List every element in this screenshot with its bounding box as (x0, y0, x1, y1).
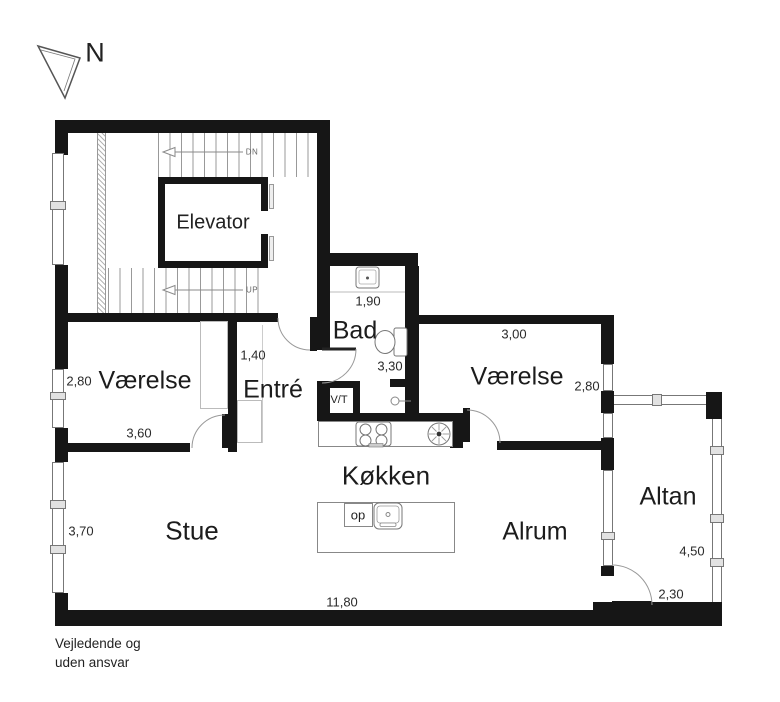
bathroom-sink (330, 267, 405, 292)
window-mullion (50, 392, 66, 400)
wall-elevator-right-lower (261, 234, 268, 268)
wall-top (55, 120, 330, 133)
room-label-vaerelse-west: Værelse (98, 367, 191, 396)
dim-vaerelse-east-width: 3,00 (501, 327, 526, 342)
wardrobe-vaerelse-west (200, 321, 228, 409)
north-arrow-icon (38, 46, 80, 98)
door-leaf-vaerelse-east (463, 408, 470, 442)
stairs-down-label: DN (246, 148, 259, 157)
window-mullion (50, 545, 66, 554)
wall-elevator-bottom (158, 261, 268, 268)
rail-mullion (710, 514, 724, 523)
door-leaf-altan (612, 601, 652, 608)
window (603, 413, 613, 438)
wall-right-segment (601, 391, 614, 413)
wall-elevator-left (158, 177, 165, 268)
toilet (375, 328, 407, 356)
wall-right-segment (601, 566, 614, 576)
wall-altan-post (706, 392, 722, 419)
north-label: N (85, 38, 105, 69)
rail-mullion (710, 558, 724, 567)
rail-mullion (652, 394, 662, 406)
room-label-altan: Altan (640, 483, 697, 512)
wall-right-segment (601, 438, 614, 470)
door-bad (322, 349, 356, 383)
wall-vaerelse-east-top (413, 315, 614, 324)
elevator-door-panel (269, 236, 274, 261)
door-leaf-vaerelse-west (222, 414, 229, 448)
door-arc-vaerelse-west (192, 415, 225, 448)
window (52, 462, 64, 593)
door-arc-vaerelse-east (467, 410, 500, 443)
elevator-label: Elevator (176, 212, 249, 235)
dim-altan-length: 4,50 (679, 544, 704, 559)
kitchen-counter (318, 421, 453, 447)
door-arc-entrance (278, 318, 310, 350)
window-mullion (50, 500, 66, 509)
disclaimer-line1: Vejledende og (55, 634, 141, 653)
door-leaf-entrance (310, 317, 317, 351)
elevator-door-panel (269, 184, 274, 209)
stairs-up-label: UP (246, 286, 258, 295)
room-label-alrum: Alrum (502, 518, 567, 547)
wall-bad-right (405, 266, 419, 416)
wall-kitchen-back (317, 413, 463, 421)
wall-bad-top (317, 253, 418, 266)
door-arc-altan (612, 565, 652, 605)
stairwell-hatched-partition (97, 133, 106, 313)
disclaimer: Vejledende og uden ansvar (55, 634, 141, 672)
room-label-bad: Bad (333, 317, 377, 346)
island-op-label: op (351, 508, 365, 523)
disclaimer-line2: uden ansvar (55, 653, 141, 672)
stairs-upper-flight (158, 133, 317, 177)
dim-entre-width: 1,40 (240, 348, 265, 363)
wall-vt-right (353, 381, 360, 413)
dim-bad-length: 3,30 (377, 359, 402, 374)
wall-stairwell-right (317, 120, 330, 266)
window (603, 470, 613, 566)
dim-altan-width: 2,30 (658, 587, 683, 602)
room-label-koekken: Køkken (342, 461, 430, 492)
window-mullion (601, 532, 615, 540)
floor-plan: N DN UP Elevator 1,90 Bad 3,30 1,40 Entr… (0, 0, 780, 702)
wall-elevator-right-upper (261, 177, 268, 211)
dim-stue-length: 11,80 (326, 595, 358, 610)
wall-vaerelse-east-bottom (497, 441, 601, 450)
wardrobe-entre (237, 400, 262, 443)
wall-bottom (55, 610, 613, 626)
window (603, 364, 613, 391)
wall-toilet-stub (390, 379, 408, 387)
wall-hall-divider (60, 313, 278, 322)
wall-entre-vaerelse (228, 321, 237, 452)
kitchen-island (317, 502, 455, 553)
room-label-entre: Entré (243, 376, 303, 405)
room-label-vt: V/T (330, 394, 347, 406)
dim-vaerelse-west-length: 3,60 (126, 426, 151, 441)
dim-vaerelse-east-depth: 2,80 (574, 379, 599, 394)
wall-elevator-top (158, 177, 268, 184)
window-mullion (50, 201, 66, 210)
wall-right-segment (601, 324, 614, 364)
dim-stue-width: 3,70 (68, 524, 93, 539)
wall-left-segment (55, 120, 68, 155)
wall-vaerelse-west-bottom (60, 443, 190, 452)
wall-bad-left-upper (317, 266, 330, 350)
dim-vaerelse-west-width: 2,80 (66, 374, 91, 389)
rail-mullion (710, 446, 724, 455)
room-label-stue: Stue (165, 516, 219, 547)
dim-bad-width: 1,90 (355, 294, 380, 309)
room-label-vaerelse-east: Værelse (470, 363, 563, 392)
stairs-lower-flight (108, 268, 266, 313)
